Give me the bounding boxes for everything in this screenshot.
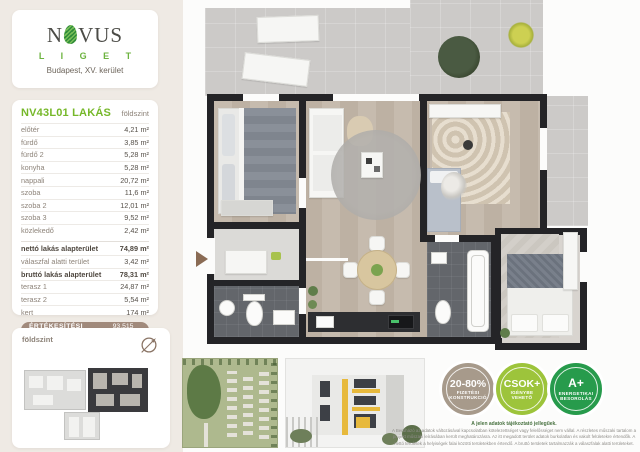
- wall: [299, 94, 306, 229]
- yellow-plant: [508, 22, 534, 48]
- row-value: 78,31 m²: [120, 270, 149, 279]
- row-value: 5,28 m²: [124, 150, 149, 159]
- bush-plant: [438, 36, 480, 78]
- building-wing-left: [24, 370, 86, 410]
- table-row: közlekedő2,42 m²: [21, 224, 149, 237]
- table-row: fürdő 25,28 m²: [21, 148, 149, 161]
- unit-card-header: NV43L01 LAKÁS földszint: [21, 107, 149, 123]
- door-gap: [299, 288, 306, 314]
- badge-csok: CSOK+ IGÉNYBE VEHETŐ: [493, 360, 551, 418]
- building-wing-highlighted-unit: [88, 368, 148, 412]
- stove: [388, 315, 414, 329]
- disclaimer-title: A jelen adatok tájékoztató jellegűek.: [390, 421, 638, 427]
- row-label: előtér: [21, 125, 39, 134]
- row-value: 4,21 m²: [124, 125, 149, 134]
- row-label: nettó lakás alapterület: [21, 244, 98, 253]
- row-label: szoba: [21, 188, 40, 197]
- toilet-tank: [243, 294, 265, 301]
- brand-logo: NVUS: [47, 23, 123, 48]
- table-row: szoba11,6 m²: [21, 186, 149, 199]
- wardrobe: [563, 232, 578, 290]
- table-row: terasz 124,87 m²: [21, 280, 149, 293]
- table-row: előtér4,21 m²: [21, 123, 149, 136]
- dining-chair: [395, 262, 410, 278]
- bathtub: [467, 250, 489, 332]
- siteplan-buildings: [204, 423, 213, 448]
- row-label: konyha: [21, 163, 45, 172]
- terrace-1: [205, 8, 413, 96]
- window-gap: [540, 128, 547, 170]
- building-wing-bottom: [64, 412, 100, 440]
- table-row: kert174 m²: [21, 305, 149, 318]
- table-row: bruttó lakás alapterület78,31 m²: [21, 268, 149, 281]
- table-row: konyha5,28 m²: [21, 161, 149, 174]
- kitchen-plant: [308, 286, 318, 296]
- row-label: kert: [21, 308, 33, 317]
- row-label: válaszfal alatti terület: [21, 257, 89, 266]
- ceiling-lamp: [463, 140, 473, 150]
- row-value: 3,42 m²: [124, 257, 149, 266]
- table-row: nappali20,72 m²: [21, 173, 149, 186]
- table-row: fürdő3,85 m²: [21, 136, 149, 149]
- wall: [299, 229, 306, 344]
- siteplan-park: [187, 365, 221, 419]
- badge-line: 20-80%: [442, 378, 494, 390]
- flower-decor: [441, 172, 467, 202]
- toilet-2: [435, 300, 451, 324]
- kitchen-counter: [308, 312, 420, 332]
- master-plant: [500, 328, 510, 338]
- brand-subname: L I G E T: [39, 51, 138, 61]
- terrace-2: [543, 96, 588, 226]
- unit-floor-label: földszint: [121, 109, 149, 118]
- siteplan-buildings: [243, 375, 253, 435]
- door-gap: [435, 235, 459, 242]
- door-gap: [299, 178, 306, 208]
- disclaimer: A jelen adatok tájékoztató jellegűek. A …: [390, 421, 638, 447]
- dining-chair: [369, 236, 385, 251]
- row-value: 24,87 m²: [120, 282, 149, 291]
- siteplan-thumbnail: [182, 358, 278, 448]
- siteplan-buildings: [227, 371, 237, 437]
- brand-location: Budapest, XV. kerület: [47, 66, 124, 75]
- miniplan-image: [20, 356, 162, 442]
- table-row: válaszfal alatti terület3,42 m²: [21, 255, 149, 268]
- row-label: közlekedő: [21, 226, 54, 235]
- siteplan-buildings: [259, 369, 269, 439]
- floorplan: [195, 0, 640, 356]
- sun-lounger: [257, 15, 320, 43]
- row-value: 174 m²: [126, 308, 149, 317]
- terrace-door-gap: [580, 252, 587, 282]
- terrace-garden: [410, 0, 543, 100]
- badge-line: A+: [550, 377, 602, 391]
- badge-line: CSOK+: [496, 378, 548, 390]
- badge-line: IGÉNYBE: [496, 390, 548, 395]
- row-label: szoba 3: [21, 213, 47, 222]
- dresser: [221, 200, 273, 216]
- row-label: bruttó lakás alapterület: [21, 270, 101, 279]
- sliding-door-gap: [333, 94, 419, 101]
- entry-decor: [271, 252, 281, 260]
- door-gap: [306, 258, 348, 261]
- room-area-table: előtér4,21 m² fürdő3,85 m² fürdő 25,28 m…: [21, 123, 149, 236]
- dining-table: [357, 250, 397, 290]
- badge-line: BESOROLÁS: [550, 396, 602, 401]
- kitchen-sink: [316, 316, 334, 328]
- sun-lounger: [242, 52, 311, 87]
- row-label: terasz 1: [21, 282, 47, 291]
- wall: [420, 235, 505, 242]
- entrance-marker-icon: [196, 251, 208, 267]
- compass-icon: [138, 334, 160, 356]
- summary-area-table: nettó lakás alapterület74,89 m² válaszfa…: [21, 241, 149, 318]
- sink: [273, 310, 295, 325]
- table-row: szoba 212,01 m²: [21, 199, 149, 212]
- brand-letters-vus: VUS: [78, 23, 123, 48]
- row-value: 74,89 m²: [120, 244, 149, 253]
- balcony-door-gap: [243, 94, 279, 101]
- brand-letter-n: N: [47, 23, 63, 48]
- row-label: szoba 2: [21, 201, 47, 210]
- washing-machine: [219, 300, 235, 316]
- badge-energy-rating: A+ ENERGETIKAI BESOROLÁS: [547, 360, 605, 418]
- unit-title: NV43L01 LAKÁS: [21, 107, 111, 119]
- row-value: 12,01 m²: [120, 201, 149, 210]
- leaf-icon: [64, 25, 78, 44]
- table-row: terasz 25,54 m²: [21, 293, 149, 306]
- unit-area-card: NV43L01 LAKÁS földszint előtér4,21 m² fü…: [12, 100, 158, 315]
- dining-chair: [343, 262, 358, 278]
- row-label: fürdő: [21, 138, 38, 147]
- row-value: 11,6 m²: [125, 188, 149, 197]
- wall: [207, 222, 306, 229]
- miniplan-floor-label: földszint: [22, 335, 53, 344]
- disclaimer-text: A Beruházó az adatok változásával kapcso…: [390, 428, 638, 447]
- row-value: 9,52 m²: [124, 213, 149, 222]
- toilet: [246, 301, 263, 326]
- badge-line: ENERGETIKAI: [550, 391, 602, 396]
- badge-line: FIZETÉSI: [442, 390, 494, 395]
- table-row: szoba 39,52 m²: [21, 211, 149, 224]
- dining-chair: [369, 290, 385, 305]
- row-label: nappali: [21, 176, 45, 185]
- row-value: 3,85 m²: [124, 138, 149, 147]
- row-value: 5,54 m²: [124, 295, 149, 304]
- row-label: terasz 2: [21, 295, 47, 304]
- table-row: nettó lakás alapterület74,89 m²: [21, 242, 149, 255]
- logo-card: NVUS L I G E T Budapest, XV. kerület: [12, 10, 158, 88]
- row-label: fürdő 2: [21, 150, 44, 159]
- row-value: 2,42 m²: [124, 226, 149, 235]
- bed-1: [218, 108, 296, 214]
- row-value: 20,72 m²: [120, 176, 149, 185]
- badge-payment-plan: 20-80% FIZETÉSI KONSTRUKCIÓ: [439, 360, 497, 418]
- sink-2: [431, 252, 447, 264]
- kitchen-plant: [308, 300, 317, 309]
- coffee-table: [361, 152, 383, 178]
- row-value: 5,28 m²: [124, 163, 149, 172]
- wall: [420, 94, 427, 242]
- badge-line: KONSTRUKCIÓ: [442, 395, 494, 400]
- wall: [491, 242, 498, 344]
- miniplan-card: földszint: [12, 328, 170, 448]
- entry-cabinet: [225, 250, 267, 274]
- badge-line: VEHETŐ: [496, 395, 548, 400]
- desk: [429, 104, 501, 118]
